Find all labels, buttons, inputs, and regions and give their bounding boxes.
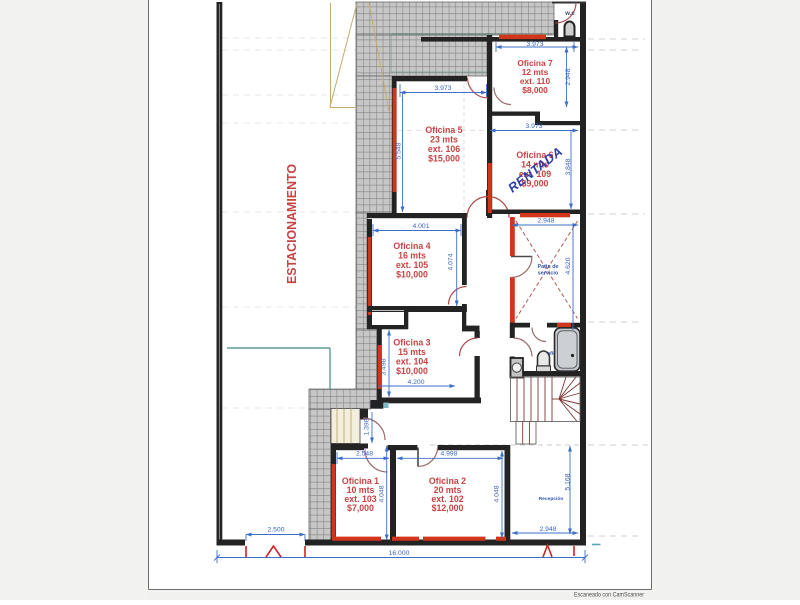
svg-text:3.973: 3.973 (434, 85, 451, 92)
svg-text:$15,000: $15,000 (428, 154, 460, 164)
svg-text:2.500: 2.500 (267, 527, 284, 534)
svg-text:4.620: 4.620 (565, 257, 572, 274)
svg-text:2.948: 2.948 (539, 526, 556, 533)
svg-text:$10,000: $10,000 (396, 270, 428, 280)
svg-text:$8,000: $8,000 (522, 85, 548, 95)
svg-text:3.973: 3.973 (526, 41, 543, 48)
svg-text:4.048: 4.048 (494, 485, 501, 502)
svg-text:4.048: 4.048 (379, 485, 386, 502)
svg-text:3.973: 3.973 (525, 123, 542, 130)
svg-text:16 mts: 16 mts (398, 251, 426, 261)
svg-text:2.948: 2.948 (537, 218, 554, 225)
svg-text:4.200: 4.200 (407, 379, 424, 386)
svg-text:2.948: 2.948 (565, 68, 572, 85)
svg-text:Patio de: Patio de (538, 264, 559, 270)
svg-text:Oficina 3: Oficina 3 (393, 338, 430, 348)
svg-text:servicio: servicio (538, 271, 559, 277)
svg-text:2.548: 2.548 (356, 451, 373, 458)
svg-text:Oficina 4: Oficina 4 (393, 241, 430, 251)
svg-text:Oficina 5: Oficina 5 (425, 125, 462, 135)
svg-text:Escaneado con CamScanner: Escaneado con CamScanner (574, 592, 645, 599)
svg-text:3.498: 3.498 (381, 358, 388, 375)
svg-text:4.001: 4.001 (412, 223, 429, 230)
svg-text:Recepción: Recepción (539, 496, 564, 502)
svg-text:$10,000: $10,000 (396, 366, 428, 376)
svg-text:$7,000: $7,000 (347, 503, 374, 513)
svg-text:ext. 104: ext. 104 (396, 357, 428, 367)
svg-text:4.074: 4.074 (448, 253, 455, 270)
svg-text:15 mts: 15 mts (398, 347, 426, 357)
svg-text:5.548: 5.548 (396, 142, 403, 159)
svg-text:ext. 106: ext. 106 (428, 144, 460, 154)
svg-text:ext. 105: ext. 105 (396, 260, 428, 270)
svg-text:5.168: 5.168 (565, 473, 572, 490)
svg-text:$12,000: $12,000 (432, 503, 464, 513)
svg-text:w.c: w.c (564, 11, 575, 17)
svg-text:3.848: 3.848 (565, 158, 572, 175)
svg-text:4.998: 4.998 (440, 451, 457, 458)
svg-text:16.000: 16.000 (389, 550, 410, 557)
svg-text:23 mts: 23 mts (430, 135, 458, 145)
svg-text:1.398: 1.398 (364, 418, 371, 435)
svg-text:ESTACIONAMIENTO: ESTACIONAMIENTO (284, 164, 299, 284)
